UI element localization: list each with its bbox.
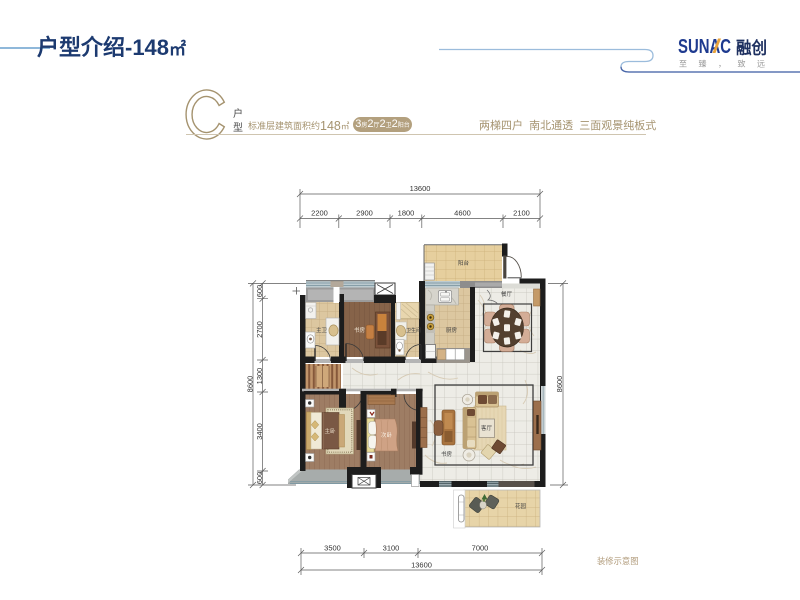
svg-text:阳台: 阳台	[458, 259, 470, 267]
svg-text:卫生间: 卫生间	[406, 327, 421, 334]
svg-text:2100: 2100	[513, 209, 530, 218]
svg-text:8600: 8600	[555, 376, 564, 393]
svg-text:主卧: 主卧	[325, 427, 337, 435]
svg-text:4600: 4600	[454, 209, 471, 218]
svg-text:7000: 7000	[472, 544, 489, 553]
svg-text:3500: 3500	[324, 544, 341, 553]
svg-text:2900: 2900	[356, 209, 373, 218]
svg-text:600: 600	[255, 472, 264, 485]
svg-text:2700: 2700	[255, 321, 264, 338]
svg-text:花园: 花园	[515, 502, 527, 510]
svg-text:2200: 2200	[311, 209, 328, 218]
svg-text:主卫: 主卫	[316, 326, 328, 334]
svg-text:厨房: 厨房	[446, 326, 458, 334]
svg-text:13600: 13600	[411, 561, 432, 570]
svg-text:书房: 书房	[441, 450, 453, 458]
svg-text:客厅: 客厅	[481, 424, 493, 432]
svg-text:3400: 3400	[255, 423, 264, 440]
svg-text:13600: 13600	[410, 184, 431, 193]
svg-text:1300: 1300	[255, 368, 264, 385]
svg-text:8600: 8600	[246, 376, 255, 393]
svg-text:书房: 书房	[354, 326, 366, 334]
svg-text:次卧: 次卧	[381, 431, 393, 439]
svg-text:1800: 1800	[398, 209, 415, 218]
svg-text:600: 600	[255, 285, 264, 298]
svg-text:3100: 3100	[383, 544, 400, 553]
svg-text:餐厅: 餐厅	[501, 290, 513, 298]
